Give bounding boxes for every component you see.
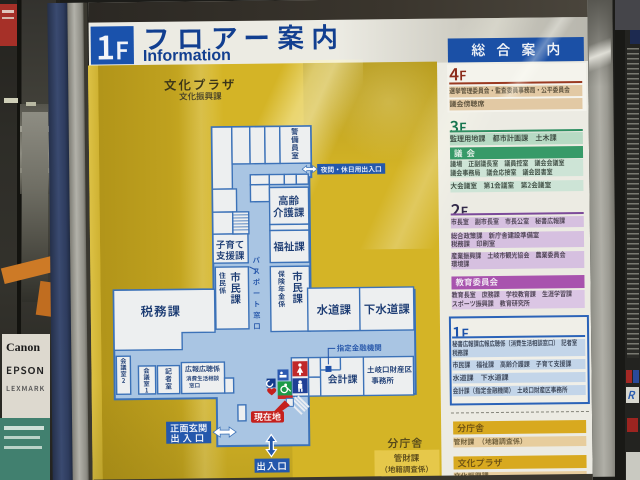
svg-text:指定金融機関: 指定金融機関 xyxy=(337,342,382,354)
svg-text:警備員室: 警備員室 xyxy=(291,126,299,161)
svg-text:住民係: 住民係 xyxy=(219,271,226,296)
svg-text:夜間・休日用出入口: 夜間・休日用出入口 xyxy=(321,163,382,174)
svg-text:窓口: 窓口 xyxy=(189,381,200,389)
svg-text:水道課: 水道課 xyxy=(316,302,351,318)
svg-text:市民課: 市民課 xyxy=(230,270,241,307)
svg-text:出入口: 出入口 xyxy=(256,458,288,472)
svg-text:出入口: 出入口 xyxy=(170,430,207,444)
svg-text:記者室: 記者室 xyxy=(165,366,172,391)
svg-text:福祉課: 福祉課 xyxy=(273,239,305,254)
svg-text:現在地: 現在地 xyxy=(254,410,281,423)
svg-text:広報広聴係: 広報広聴係 xyxy=(185,364,220,374)
svg-text:保険年金係: 保険年金係 xyxy=(278,269,285,309)
svg-text:税務課: 税務課 xyxy=(140,301,181,320)
svg-text:パスポート窓口: パスポート窓口 xyxy=(253,256,261,332)
svg-text:子育て支援課: 子育て支援課 xyxy=(216,237,245,262)
svg-text:市民課: 市民課 xyxy=(292,269,303,306)
svg-text:分庁舎: 分庁舎 xyxy=(387,435,423,451)
svg-text:（地籍調査係）: （地籍調査係） xyxy=(380,464,433,476)
svg-text:下水道課: 下水道課 xyxy=(364,301,411,318)
svg-text:会計課: 会計課 xyxy=(327,371,357,386)
svg-text:管財課: 管財課 xyxy=(394,452,420,464)
